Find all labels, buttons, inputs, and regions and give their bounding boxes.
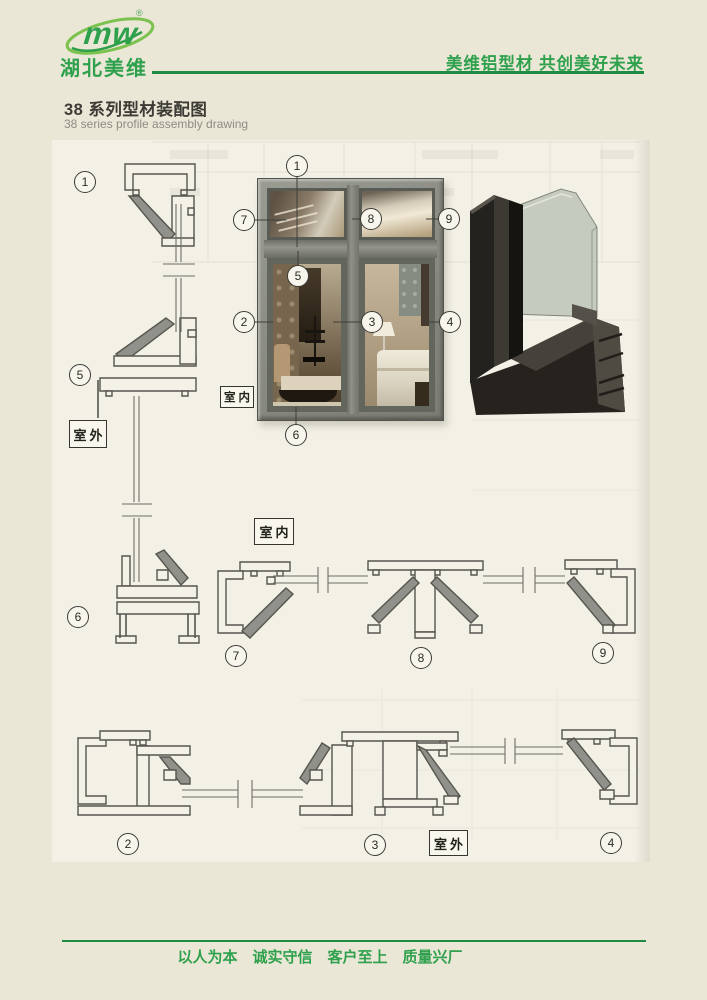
callout-window-3: 3	[361, 311, 383, 333]
callout-window-1: 1	[286, 155, 308, 177]
callout-window-2: 2	[233, 311, 255, 333]
callout-section-8: 8	[410, 647, 432, 669]
callout-window-7: 7	[233, 209, 255, 231]
callout-section-4: 4	[600, 832, 622, 854]
callout-section-3: 3	[364, 834, 386, 856]
catalog-page: mw ® 湖北美维 美维铝型材 共创美好未来 38 系列型材装配图 38 ser…	[0, 0, 707, 1000]
callout-section-7: 7	[225, 645, 247, 667]
callout-window-4: 4	[439, 311, 461, 333]
callout-window-6: 6	[285, 424, 307, 446]
callout-section-2: 2	[117, 833, 139, 855]
label-outdoor-bottom: 室外	[429, 830, 468, 856]
label-indoor-window: 室内	[220, 386, 254, 408]
label-outdoor-left: 室外	[69, 420, 107, 448]
callout-section-1: 1	[74, 171, 96, 193]
callout-section-6: 6	[67, 606, 89, 628]
leader-lines	[0, 0, 707, 1000]
callout-section-9: 9	[592, 642, 614, 664]
callout-window-8: 8	[360, 208, 382, 230]
callout-window-9: 9	[438, 208, 460, 230]
label-indoor-middle: 室内	[254, 518, 294, 545]
callout-section-5: 5	[69, 364, 91, 386]
callout-window-5: 5	[287, 265, 309, 287]
